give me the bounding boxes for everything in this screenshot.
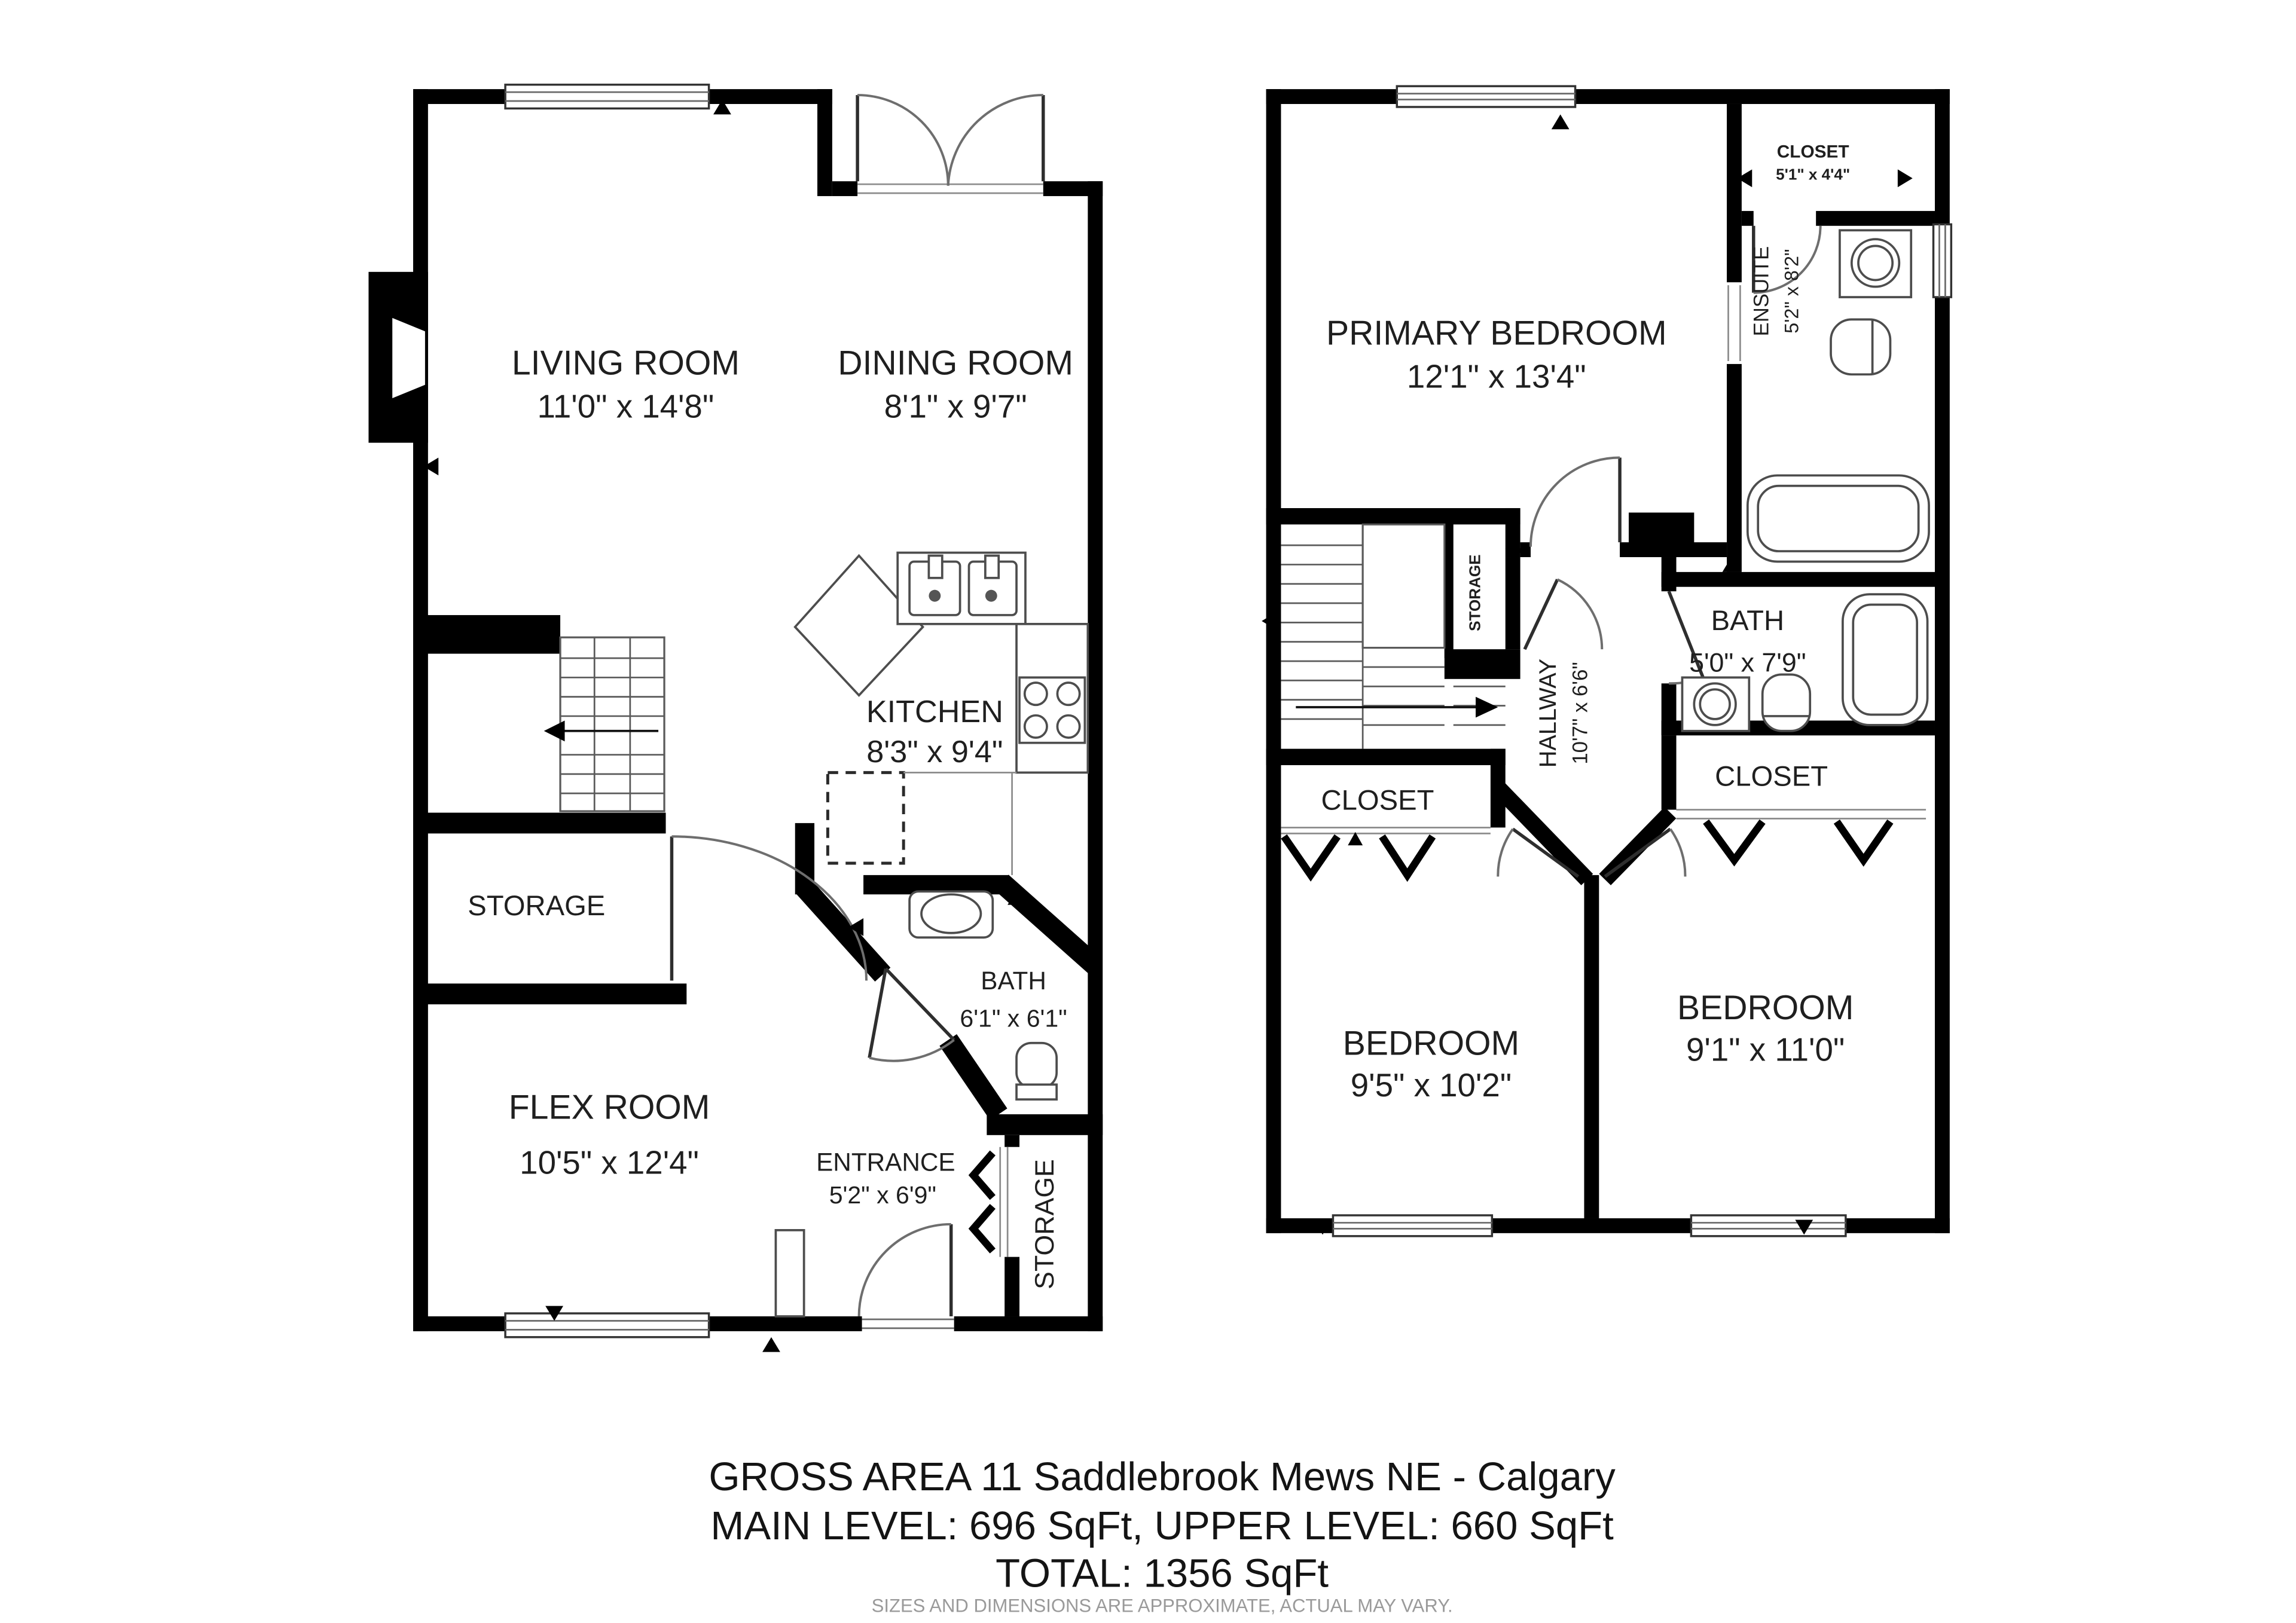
stair-direction-arrow xyxy=(544,720,565,741)
upper-storage-label: STORAGE xyxy=(1465,554,1483,631)
bifold-door-icon xyxy=(973,1206,993,1251)
bath-vanity xyxy=(1682,677,1749,730)
entrance-dims: 5'2" x 6'9" xyxy=(829,1181,936,1209)
entry-closet-rod xyxy=(775,1230,804,1316)
bifold-door-icon xyxy=(1706,821,1762,860)
primary-bedroom-door-arc xyxy=(1531,457,1620,546)
primary-bedroom-dims: 12'1" x 13'4" xyxy=(1407,359,1586,395)
bedroom-right-label: BEDROOM xyxy=(1677,989,1854,1027)
closet-top-label: CLOSET xyxy=(1777,142,1849,161)
dining-room-label: DINING ROOM xyxy=(838,344,1073,382)
bedroom-left-label: BEDROOM xyxy=(1343,1025,1519,1063)
ensuite-fixtures xyxy=(1748,230,1929,561)
hallway-label: HALLWAY xyxy=(1535,659,1561,768)
bedroom-left-dims: 9'5" x 10'2" xyxy=(1351,1067,1512,1104)
dishwasher-dashed-outline xyxy=(828,772,903,863)
primary-bedroom-label: PRIMARY BEDROOM xyxy=(1326,314,1667,353)
floor-plan-page: LIVING ROOM 11'0" x 14'8" DINING ROOM 8'… xyxy=(0,0,2296,1623)
flex-room-label: FLEX ROOM xyxy=(509,1088,710,1126)
fireplace-niche xyxy=(392,318,425,398)
bath-diagonal-wall-lower xyxy=(948,1040,999,1114)
closet-left-label: CLOSET xyxy=(1321,785,1434,817)
faucet-right-icon xyxy=(985,556,999,578)
bathtub-icon xyxy=(1748,475,1929,561)
main-stairs xyxy=(544,637,664,811)
dining-room-dims: 8'1" x 9'7" xyxy=(884,388,1027,424)
bath-diagonal-wall-left xyxy=(804,887,883,975)
toilet-icon xyxy=(1763,674,1810,730)
footer-total-line: TOTAL: 1356 SqFt xyxy=(996,1551,1329,1596)
toilet-icon xyxy=(1016,1043,1057,1088)
floor-plan-drawing: LIVING ROOM 11'0" x 14'8" DINING ROOM 8'… xyxy=(0,0,2296,1622)
sink-drain-left xyxy=(929,590,941,602)
living-room-dims: 11'0" x 14'8" xyxy=(538,388,715,424)
flex-room-dims: 10'5" x 12'4" xyxy=(520,1144,699,1181)
ensuite-window xyxy=(1934,224,1952,297)
closet-right-label: CLOSET xyxy=(1715,761,1828,793)
storage-label: STORAGE xyxy=(468,890,605,922)
footer-levels-line: MAIN LEVEL: 696 SqFt, UPPER LEVEL: 660 S… xyxy=(710,1503,1614,1548)
closet-top-dims: 5'1" x 4'4" xyxy=(1776,166,1850,184)
patio-double-door xyxy=(857,95,1043,193)
upper-level-plan: PRIMARY BEDROOM 12'1" x 13'4" CLOSET 5'1… xyxy=(1262,86,1951,1236)
storage-door-arc xyxy=(1558,579,1602,649)
primary-bedroom-window xyxy=(1397,86,1575,107)
bath-dims: 6'1" x 6'1" xyxy=(960,1004,1067,1032)
footer: GROSS AREA 11 Saddlebrook Mews NE - Calg… xyxy=(709,1454,1616,1616)
bedroom-right-window xyxy=(1691,1215,1845,1236)
kitchen-label: KITCHEN xyxy=(866,695,1003,729)
hall-diagonal-wall-left xyxy=(1498,787,1587,879)
bath-label: BATH xyxy=(981,967,1046,995)
hallway-dims: 10'7" x 6'6" xyxy=(1569,662,1592,764)
front-door-arc xyxy=(859,1224,951,1316)
footer-disclaimer: SIZES AND DIMENSIONS ARE APPROXIMATE, AC… xyxy=(872,1596,1453,1616)
stairwell-void xyxy=(1363,524,1445,647)
stove xyxy=(1019,677,1085,742)
flex-room-window xyxy=(505,1313,709,1337)
bedroom-left-door-arc xyxy=(1498,829,1513,877)
footer-address-line: GROSS AREA 11 Saddlebrook Mews NE - Calg… xyxy=(709,1454,1616,1499)
upper-bath-label: BATH xyxy=(1711,605,1784,637)
living-room-window xyxy=(505,85,709,109)
kitchen-dims: 8'3" x 9'4" xyxy=(866,735,1003,769)
rear-storage-label: STORAGE xyxy=(1030,1159,1060,1289)
living-room-label: LIVING ROOM xyxy=(512,344,740,382)
bifold-door-icon xyxy=(1284,836,1337,875)
sink-drain-right xyxy=(985,590,997,602)
ensuite-label: ENSUITE xyxy=(1751,246,1773,337)
bifold-door-icon xyxy=(1837,821,1890,860)
ensuite-dims: 5'2" x 8'2" xyxy=(1781,249,1802,334)
bedroom-left-window xyxy=(1333,1215,1492,1236)
main-level-plan: LIVING ROOM 11'0" x 14'8" DINING ROOM 8'… xyxy=(368,85,1103,1352)
closet-bifolds xyxy=(1281,810,1926,875)
entrance-label: ENTRANCE xyxy=(816,1148,955,1176)
toilet-tank xyxy=(1016,1084,1057,1099)
stair-direction-arrow xyxy=(1476,697,1498,718)
bedroom-right-dims: 9'1" x 11'0" xyxy=(1686,1032,1845,1068)
upper-bath-dims: 5'0" x 7'9" xyxy=(1689,648,1806,677)
toilet-icon xyxy=(1831,319,1890,374)
bifold-door-icon xyxy=(973,1153,993,1198)
bedroom-right-door-arc xyxy=(1671,829,1686,877)
faucet-left-icon xyxy=(929,556,942,578)
bifold-door-icon xyxy=(1382,836,1433,875)
